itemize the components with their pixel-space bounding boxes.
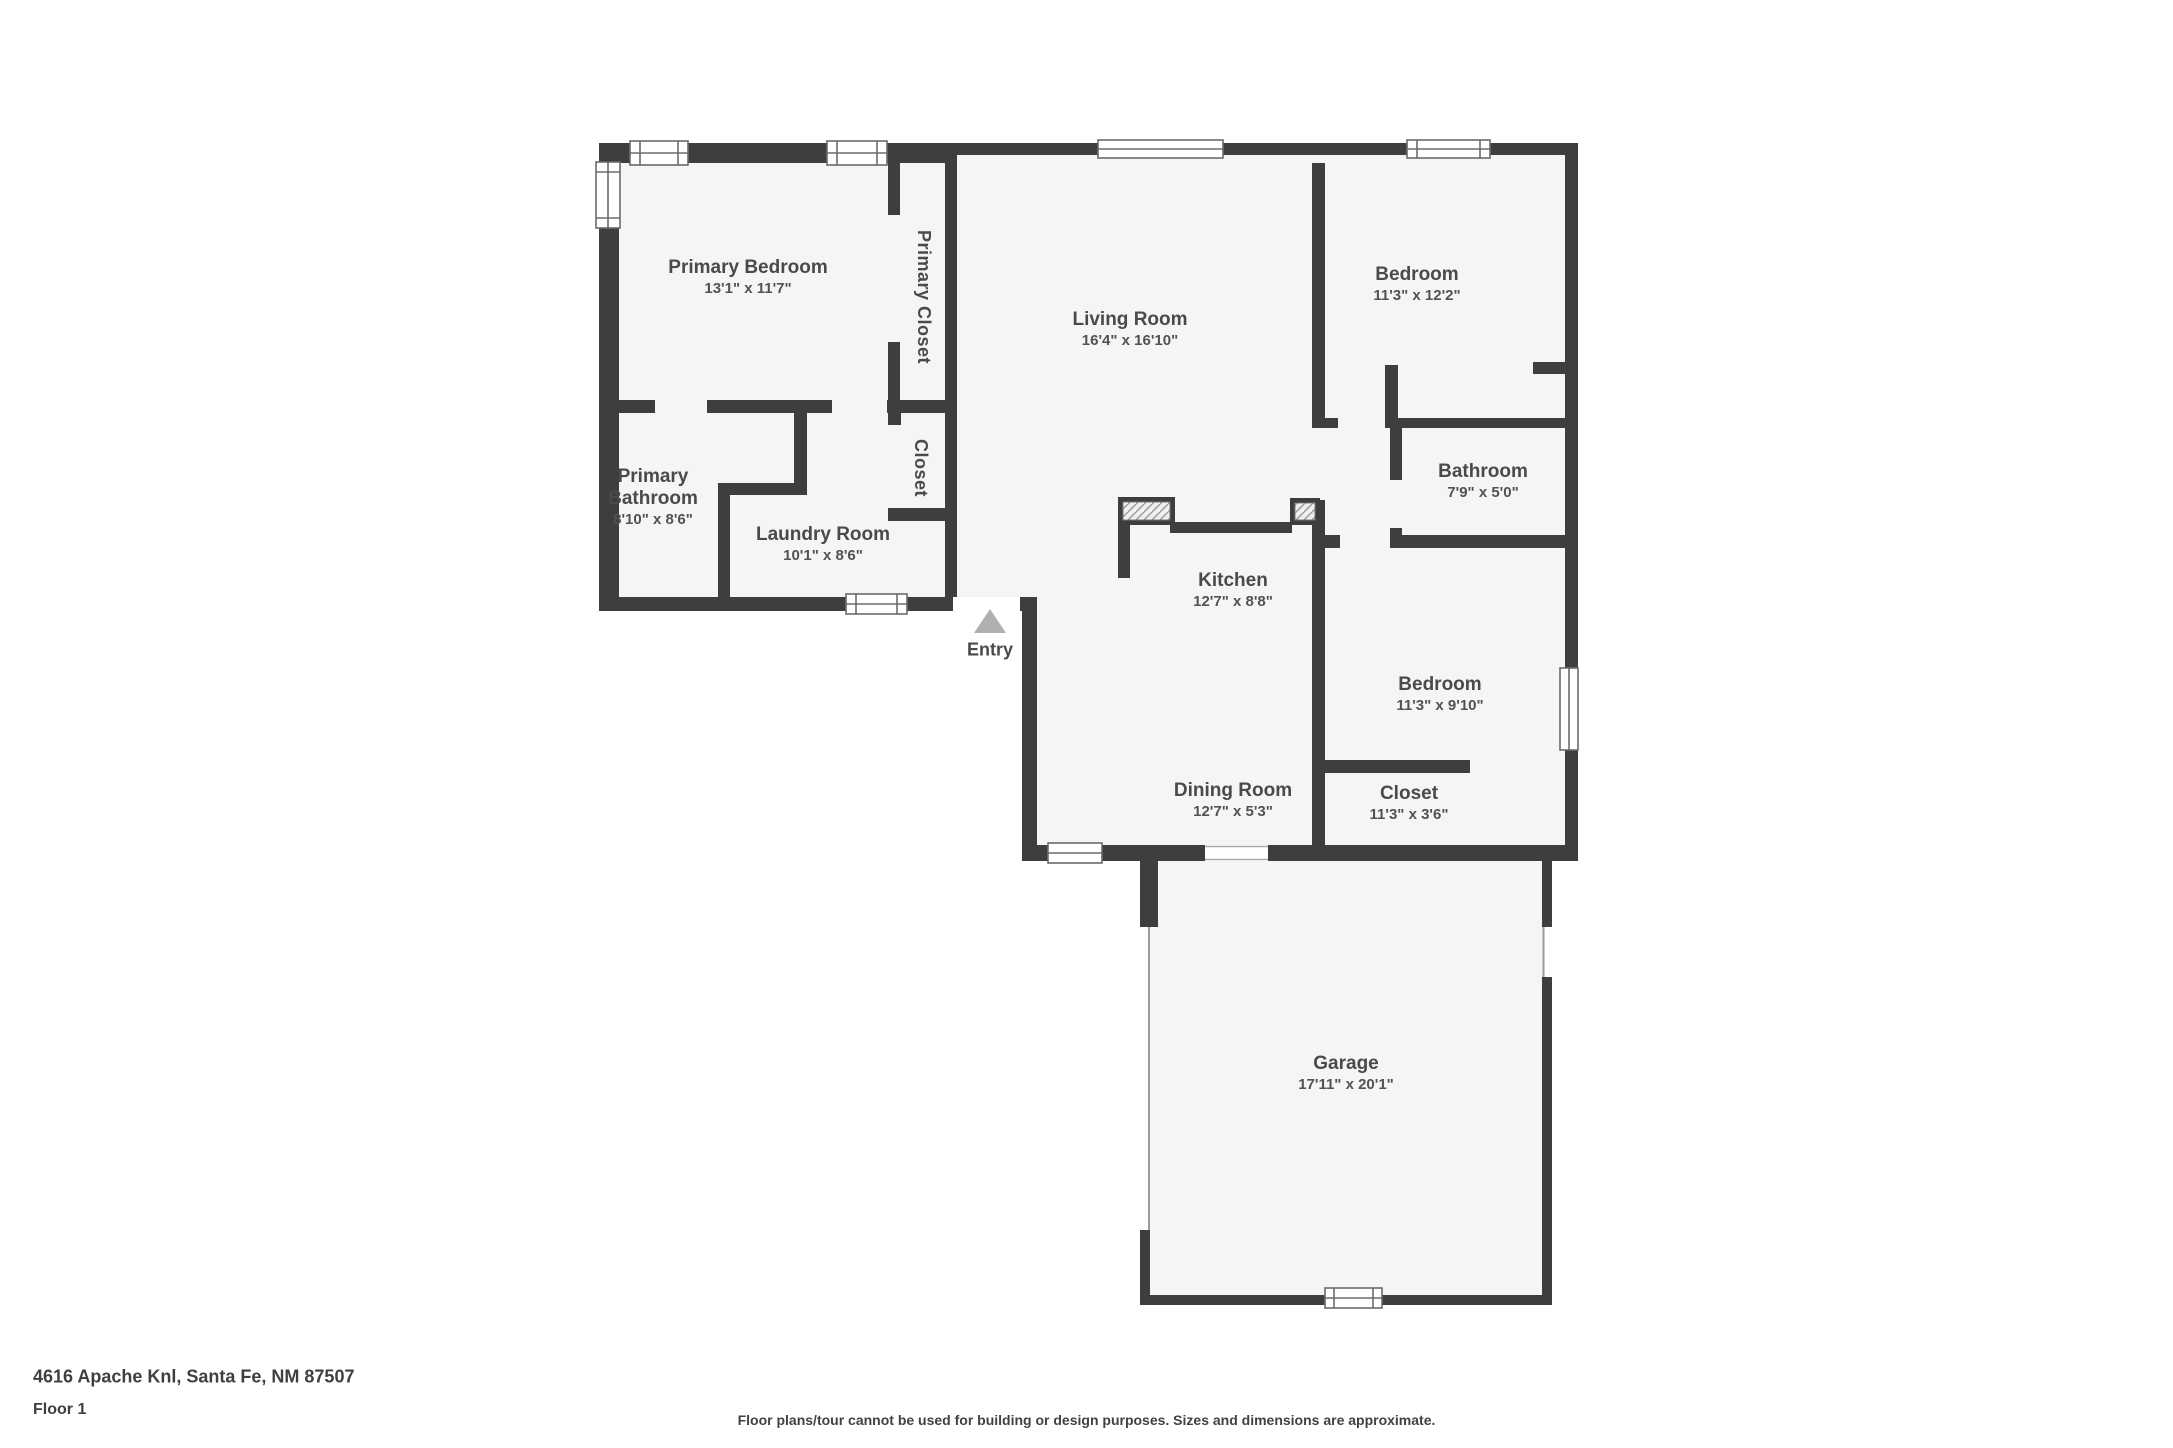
room-name: Primary Bedroom	[668, 257, 827, 279]
entry-label: Entry	[967, 640, 1013, 661]
room-dims: 13'1" x 11'7"	[668, 279, 827, 299]
wall-bedroom2-closet	[1325, 760, 1470, 773]
room-dims: 17'11" x 20'1"	[1298, 1075, 1394, 1095]
window-icon	[1407, 140, 1490, 158]
room-label-primary-bedroom: Primary Bedroom 13'1" x 11'7"	[668, 257, 827, 299]
door-bedroom1	[1338, 418, 1385, 428]
floorplan-page: Primary Bedroom 13'1" x 11'7" Primary Cl…	[0, 0, 2173, 1448]
wall-eastwing-left	[1022, 597, 1037, 861]
room-label-hall-closet: Closet	[910, 439, 932, 497]
room-name: Primary Bathroom	[573, 466, 733, 510]
outside-area	[599, 611, 1022, 861]
room-label-laundry-room: Laundry Room 10'1" x 8'6"	[756, 524, 890, 566]
room-label-kitchen: Kitchen 12'7" x 8'8"	[1193, 570, 1273, 612]
room-dims: 10'1" x 8'6"	[756, 546, 890, 566]
wall-southeast	[1022, 845, 1577, 861]
window-icon	[827, 141, 887, 165]
window-icon	[596, 162, 620, 228]
window-icon	[846, 594, 907, 614]
counter-hatch-icon	[1118, 497, 1175, 525]
wall-garage-left-pillar	[1140, 854, 1158, 927]
window-icon	[630, 141, 688, 165]
room-label-garage: Garage 17'11" x 20'1"	[1298, 1053, 1394, 1095]
wall-kitchen-stub	[1118, 522, 1130, 578]
room-label-bathroom: Bathroom 7'9" x 5'0"	[1438, 461, 1528, 503]
door-primary-bathroom	[655, 400, 707, 413]
floor-label: Floor 1	[33, 1401, 86, 1419]
room-name: Garage	[1298, 1053, 1394, 1075]
room-name: Kitchen	[1193, 570, 1273, 592]
room-label-primary-bathroom: Primary Bathroom 8'10" x 8'6"	[573, 466, 733, 530]
door-primary-closet	[888, 215, 900, 342]
wall-bedroom1-closet-v	[1385, 365, 1398, 428]
disclaimer-text: Floor plans/tour cannot be used for buil…	[738, 1412, 1436, 1428]
room-name: Bedroom	[1373, 264, 1460, 286]
room-label-bedroom-closet: Closet 11'3" x 3'6"	[1370, 783, 1449, 825]
room-label-dining-room: Dining Room 12'7" x 5'3"	[1174, 780, 1292, 822]
wall-hall-closet-bottom	[888, 508, 957, 521]
room-dims: 12'7" x 5'3"	[1174, 802, 1292, 822]
window-icon	[1098, 140, 1223, 158]
address-text: 4616 Apache Knl, Santa Fe, NM 87507	[33, 1367, 354, 1388]
door-bedroom2	[1340, 535, 1390, 548]
window-icon	[1325, 1288, 1382, 1308]
wall-primary-bath-v1	[794, 413, 807, 487]
window-icon	[1560, 668, 1578, 750]
room-label-primary-closet: Primary Closet	[913, 230, 935, 364]
wall-living-bedroom	[1312, 163, 1325, 428]
floorplan-drawing	[0, 0, 2173, 1448]
opening-garage-left	[1140, 927, 1150, 1230]
opening-garage-right	[1542, 927, 1552, 977]
wall-primary-bedroom-bottom	[599, 400, 957, 413]
room-name: Bathroom	[1438, 461, 1528, 483]
wall-kitchen-top	[1170, 522, 1292, 533]
room-name: Laundry Room	[756, 524, 890, 546]
room-dims: 11'3" x 12'2"	[1373, 286, 1460, 306]
door-bathroom	[1390, 480, 1402, 528]
opening-dining-garage	[1205, 845, 1268, 861]
wall-bedroom2-left	[1312, 535, 1325, 854]
window-icon	[1048, 843, 1102, 863]
room-dims: 12'7" x 8'8"	[1193, 592, 1273, 612]
room-dims: 7'9" x 5'0"	[1438, 483, 1528, 503]
door-hall-closet	[888, 425, 901, 508]
room-name: Closet	[1370, 783, 1449, 805]
door-entry	[953, 597, 1020, 611]
room-dims: 11'3" x 3'6"	[1370, 805, 1449, 825]
room-name: Primary Closet	[913, 230, 935, 364]
wall-livingroom-left	[945, 163, 957, 611]
room-name: Closet	[910, 439, 932, 497]
room-dims: 11'3" x 9'10"	[1396, 696, 1483, 716]
room-name: Bedroom	[1396, 674, 1483, 696]
room-label-bedroom-top: Bedroom 11'3" x 12'2"	[1373, 264, 1460, 306]
room-name: Living Room	[1072, 309, 1187, 331]
room-label-bedroom-right: Bedroom 11'3" x 9'10"	[1396, 674, 1483, 716]
wall-garage-right	[1542, 854, 1552, 1305]
room-dims: 16'4" x 16'10"	[1072, 331, 1187, 351]
room-dims: 8'10" x 8'6"	[573, 510, 733, 530]
room-label-living-room: Living Room 16'4" x 16'10"	[1072, 309, 1187, 351]
wall-bedroom1-closet-h	[1533, 362, 1567, 374]
counter-hatch-icon	[1290, 498, 1320, 525]
door-laundry	[832, 400, 887, 413]
wall-right	[1565, 143, 1578, 861]
room-name: Dining Room	[1174, 780, 1292, 802]
